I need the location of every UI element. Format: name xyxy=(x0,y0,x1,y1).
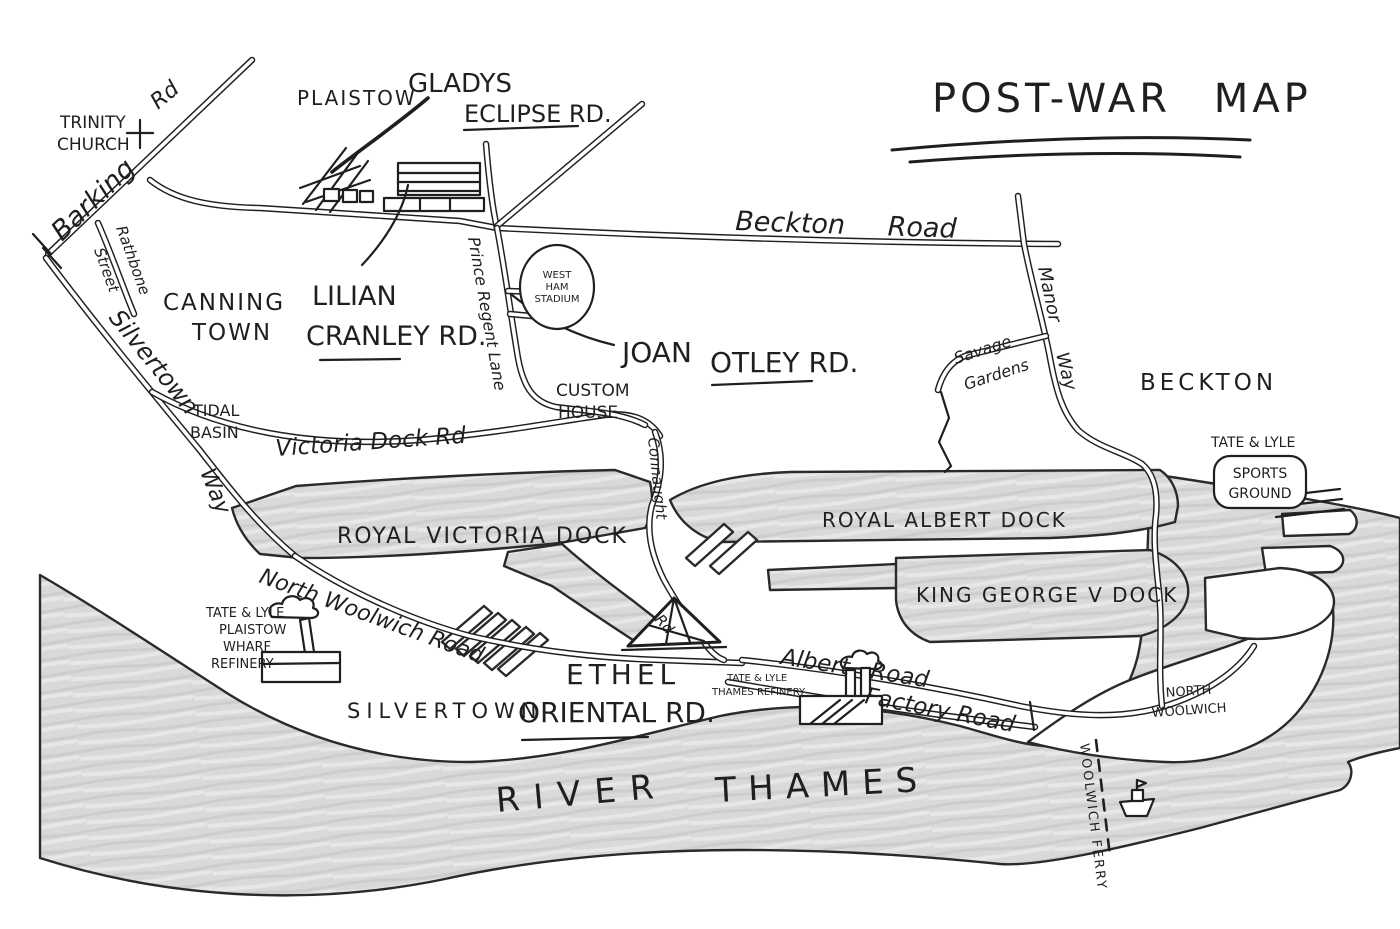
tate-sports-title: TATE & LYLE xyxy=(1210,435,1295,451)
tidal-basin-label-2: BASIN xyxy=(190,423,239,442)
tate-plaistow-label-1: TATE & LYLE xyxy=(205,606,284,621)
custom-house-label-2: HOUSE xyxy=(558,403,618,423)
tate-thames-label-1: TATE & LYLE xyxy=(726,673,787,684)
cranley-rd-label: CRANLEY RD. xyxy=(306,321,487,352)
tidal-basin-label-1: TIDAL xyxy=(192,401,239,420)
dock-king-george-arm xyxy=(768,564,898,590)
postwar-map-canvas: WEST HAM STADIUM TATE & LYLE SPORTS GROU… xyxy=(0,0,1400,929)
trinity-church-label-1: TRINITY xyxy=(59,113,126,133)
silvertown-area-label: SILVERTOWN xyxy=(347,699,542,723)
oriental-rd-label: ORIENTAL RD. xyxy=(518,696,715,729)
map-title: POST-WAR MAP xyxy=(932,76,1312,122)
stadium-label-3: STADIUM xyxy=(534,294,579,305)
king-george-v-dock-label: KING GEORGE V DOCK xyxy=(916,583,1178,607)
canning-town-label-1: CANNING xyxy=(163,290,285,316)
ethel-label: ETHEL xyxy=(566,658,680,691)
otley-rd-label: OTLEY RD. xyxy=(710,346,858,379)
tate-plaistow-label-2: PLAISTOW xyxy=(219,623,287,638)
joan-label: JOAN xyxy=(620,336,692,369)
north-woolwich-label-1: NORTH xyxy=(1165,683,1212,701)
tate-sports-line1: SPORTS xyxy=(1233,466,1288,482)
tate-thames-label-2: THAMES REFINERY xyxy=(711,687,806,698)
royal-albert-dock-label: ROYAL ALBERT DOCK xyxy=(822,508,1067,532)
custom-house-label-1: CUSTOM xyxy=(556,381,630,401)
tate-sports-line2: GROUND xyxy=(1228,486,1291,502)
sports-ground-box: TATE & LYLE SPORTS GROUND xyxy=(1210,435,1306,508)
plaistow-label: PLAISTOW xyxy=(297,86,417,110)
trinity-church-label-2: CHURCH xyxy=(57,135,130,155)
tate-plaistow-label-3: WHARF xyxy=(223,640,271,655)
eclipse-rd-label: ECLIPSE RD. xyxy=(464,100,612,128)
stadium-label-2: HAM xyxy=(546,282,569,293)
stadium-label-1: WEST xyxy=(543,270,573,281)
beckton-area-label: BECKTON xyxy=(1140,370,1277,396)
stadium-icon: WEST HAM STADIUM xyxy=(520,245,594,329)
tate-plaistow-label-4: REFINERY xyxy=(211,657,274,672)
lilian-label: LILIAN xyxy=(312,281,397,312)
underline-cranley xyxy=(320,359,400,360)
postwar-map-page: WEST HAM STADIUM TATE & LYLE SPORTS GROU… xyxy=(0,0,1400,929)
gladys-label: GLADYS xyxy=(408,69,512,99)
royal-victoria-dock-label: ROYAL VICTORIA DOCK xyxy=(337,524,628,549)
canning-town-label-2: TOWN xyxy=(191,320,272,346)
